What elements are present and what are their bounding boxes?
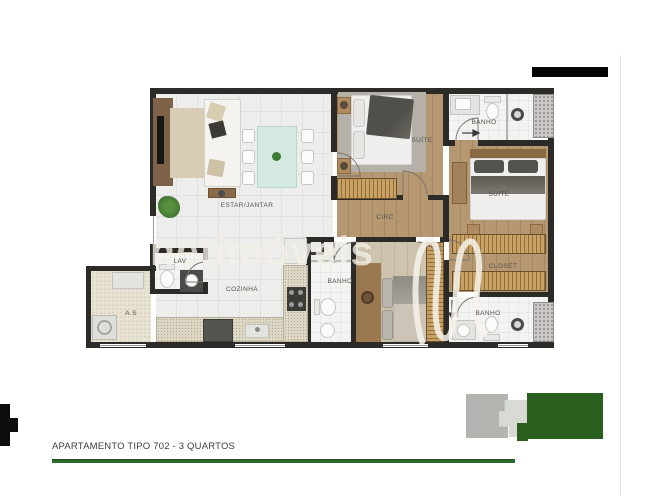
watermark-n-mark bbox=[408, 222, 493, 350]
footer-green-line bbox=[52, 459, 515, 463]
room-label-banho-1: BANHO bbox=[462, 119, 506, 126]
room-label-as: A.S bbox=[118, 310, 144, 317]
plan-title: APARTAMENTO TIPO 702 - 3 QUARTOS bbox=[52, 441, 235, 452]
room-label-cozinha: COZINHA bbox=[216, 286, 268, 293]
room-label-suite-1: SUÍTE bbox=[402, 137, 442, 144]
room-label-closet: CLOSET bbox=[481, 263, 525, 270]
room-label-suite-2: SUÍTE bbox=[479, 191, 519, 198]
logo-green-rect bbox=[527, 393, 603, 439]
room-label-banho-2: BANHO bbox=[318, 278, 362, 285]
room-label-lav: LAV bbox=[167, 258, 193, 265]
room-label-estar-jantar: ESTAR/JANTAR bbox=[217, 202, 277, 209]
listing-image: netimóveis ESTAR/JANTAR SUÍTE BANHO SUÍT… bbox=[0, 0, 651, 496]
logo-green-step bbox=[517, 423, 528, 441]
room-label-banho-3: BANHO bbox=[466, 310, 510, 317]
watermark-text: netimóveis bbox=[150, 228, 374, 275]
logo bbox=[460, 390, 610, 446]
room-label-circ: CIRC bbox=[370, 214, 400, 221]
